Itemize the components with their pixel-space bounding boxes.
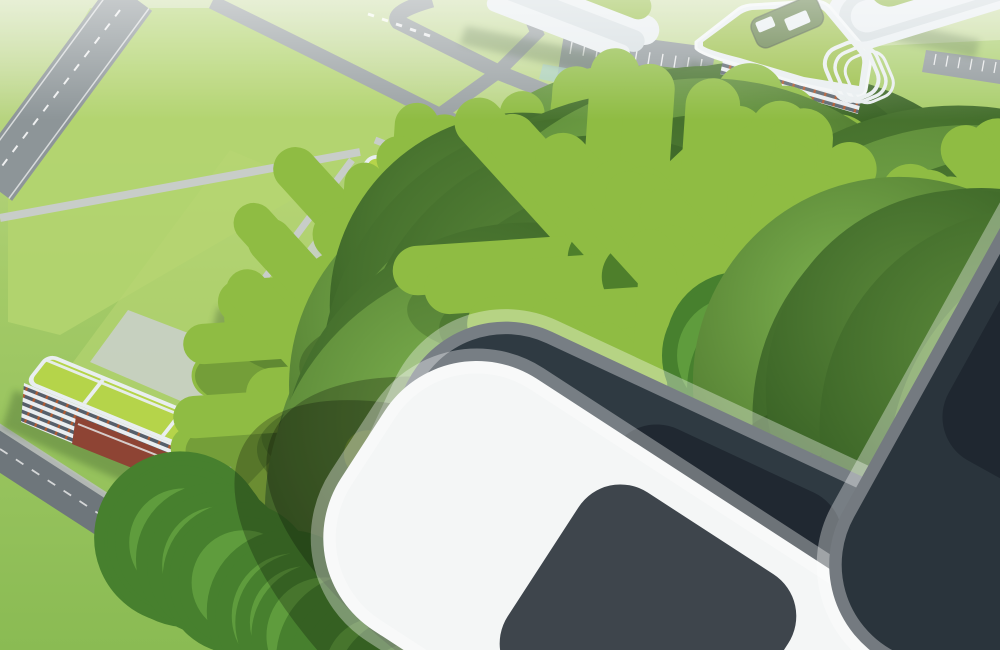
- atmosphere: [0, 0, 1000, 120]
- distance-haze: [0, 0, 1000, 120]
- aerial-rendering: [0, 0, 1000, 650]
- aerial-rendering-stage: [0, 0, 1000, 650]
